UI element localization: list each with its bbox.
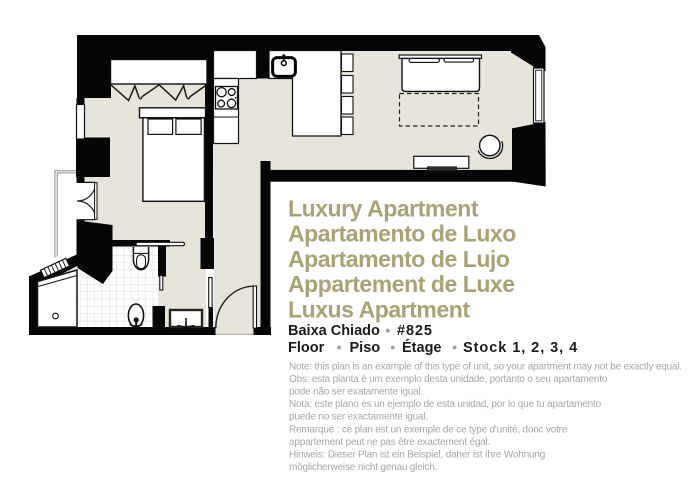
svg-text:puede no ser exactamente igual: puede no ser exactamente igual. <box>289 412 428 423</box>
svg-text:Floor: Floor <box>288 340 325 356</box>
svg-text:Note: this plan is an example: Note: this plan is an example of this ty… <box>289 361 682 372</box>
svg-text:Obs: esta planta é um exemplo: Obs: esta planta é um exemplo desta unid… <box>289 374 608 385</box>
svg-text:Luxus Apartment: Luxus Apartment <box>288 296 470 322</box>
svg-text:Baixa Chiado: Baixa Chiado <box>288 323 380 339</box>
svg-text:Apartamento de Luxo: Apartamento de Luxo <box>288 221 516 247</box>
svg-text:Appartement de Luxe: Appartement de Luxe <box>288 271 515 297</box>
svg-text:Luxury Apartment: Luxury Apartment <box>288 196 479 222</box>
svg-text:Nota: este plano es un ejemplo: Nota: este plano es un ejemplo de esta u… <box>289 399 602 410</box>
svg-text:möglicherweise nicht genau gle: möglicherweise nicht genau gleich. <box>289 462 437 473</box>
svg-text:Piso: Piso <box>350 340 381 356</box>
svg-text:Stock 1, 2, 3, 4: Stock 1, 2, 3, 4 <box>463 340 578 356</box>
svg-text:Apartamento de Lujo: Apartamento de Lujo <box>288 246 510 272</box>
svg-text:appartement peut ne pas être e: appartement peut ne pas être exactement … <box>289 437 490 448</box>
svg-text:pode não ser exatamente igual.: pode não ser exatamente igual. <box>289 387 423 398</box>
svg-text:#825: #825 <box>397 323 433 339</box>
svg-text:Hinweis: Dieser Plan ist ein B: Hinweis: Dieser Plan ist ein Beispiel, d… <box>289 450 545 461</box>
svg-text:Remarque : ce plan est un exem: Remarque : ce plan est un exemple de ce … <box>289 424 568 435</box>
svg-text:Étage: Étage <box>402 339 442 356</box>
